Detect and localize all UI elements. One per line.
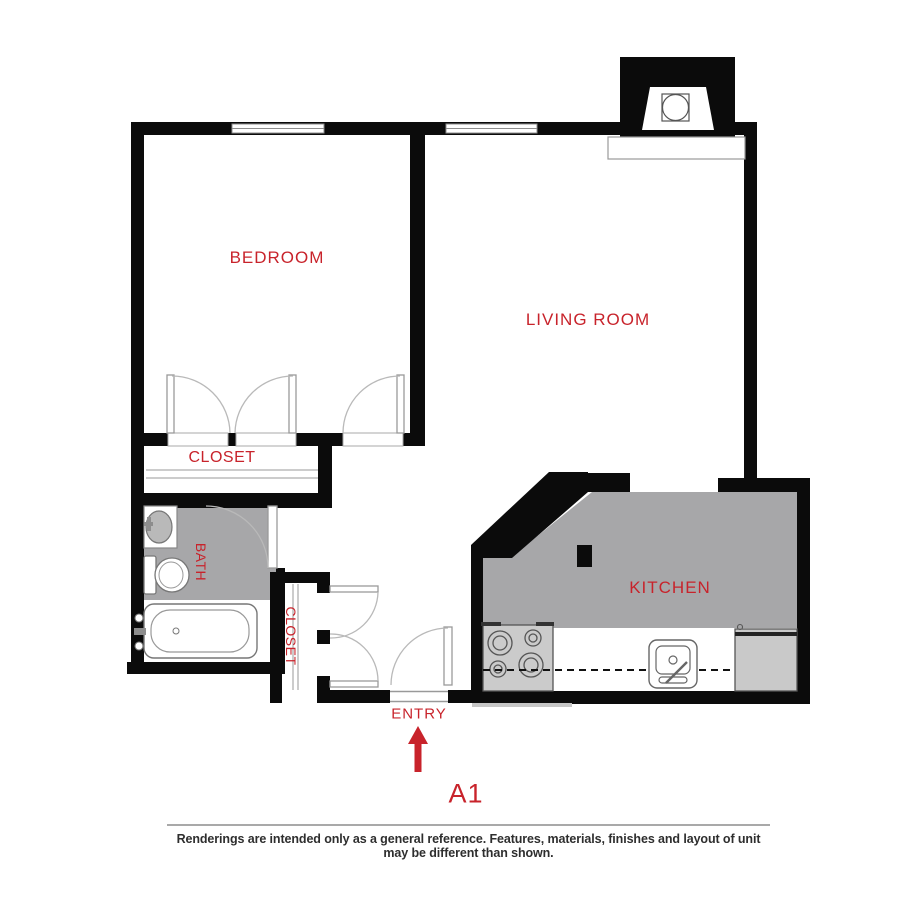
- hearth: [608, 137, 745, 159]
- entry-label: ENTRY: [391, 706, 447, 723]
- floor-plan-canvas: BEDROOM LIVING ROOM KITCHEN CLOSET BATH …: [0, 0, 900, 900]
- kitchen-sink: [649, 640, 697, 688]
- toilet: [144, 556, 189, 594]
- floor-plan-drawing: [0, 0, 900, 900]
- entry-arrow-icon: [408, 726, 428, 772]
- stove: [481, 622, 554, 691]
- entry-closet-doors: [330, 586, 378, 687]
- unit-label: A1: [448, 779, 483, 810]
- bath-label: BATH: [193, 543, 209, 581]
- bedroom-label: BEDROOM: [230, 248, 325, 268]
- bath-sink: [144, 506, 177, 548]
- living-room-label: LIVING ROOM: [526, 310, 650, 330]
- kitchen-label: KITCHEN: [629, 578, 711, 598]
- bedroom-door: [343, 375, 404, 433]
- disclaimer-text: Renderings are intended only as a genera…: [167, 832, 770, 860]
- refrigerator: [735, 625, 797, 692]
- bedroom-closet-doors: [167, 375, 296, 433]
- disclaimer-divider: [167, 824, 770, 826]
- entry-door: [391, 627, 452, 685]
- bedroom-closet-label: CLOSET: [188, 449, 255, 467]
- entry-closet-label: CLOSET: [283, 606, 299, 665]
- bathtub: [134, 604, 257, 658]
- wall-shadow: [472, 703, 572, 707]
